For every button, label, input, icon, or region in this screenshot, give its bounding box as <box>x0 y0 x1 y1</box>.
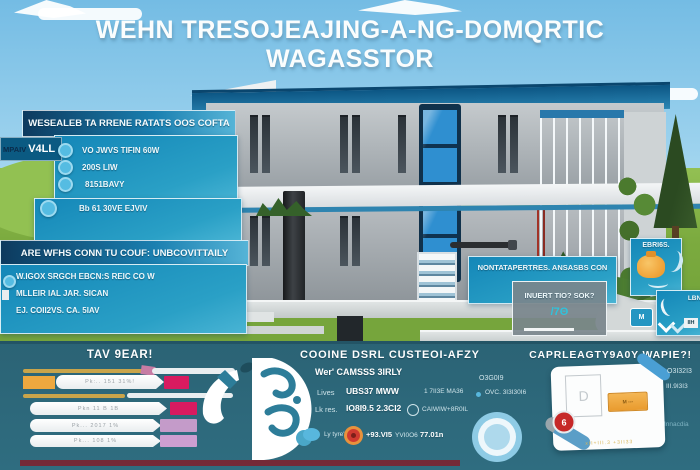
glass-pane <box>423 110 457 182</box>
blue-ellipse-icon[interactable] <box>303 428 320 441</box>
row-extra: 1 7II3E MA36 <box>424 388 463 395</box>
list-marker <box>2 290 9 300</box>
bullet-icon <box>58 143 73 158</box>
metric-sub: OVC. 3I3I30I6 <box>485 389 526 396</box>
stat-label: VO JWVS TIFIN 60W <box>82 146 159 155</box>
window <box>352 115 360 173</box>
row-value: IO8I9.5 2.3CI2 <box>346 403 401 413</box>
bar-value-block <box>170 402 197 415</box>
info-panel-header: ARE WFHS CONN TU COUF: UNBCOVITTAILY <box>0 240 249 266</box>
mini-value-chip: IIH <box>684 318 698 328</box>
window <box>352 216 360 266</box>
stats-side-tab[interactable]: MPAIV V4LL <box>0 137 62 161</box>
window <box>262 115 270 173</box>
bar-value-block <box>160 435 197 447</box>
bar-label: Pk... 2017 1% <box>72 423 119 429</box>
underline <box>524 328 574 331</box>
bar-row[interactable]: Pk... 2017 1% <box>30 419 161 432</box>
info-line: MLLEIR IAL JAR. SICAN <box>16 289 108 298</box>
column2-subtitle: Wer' CAMSSS 3IRLY <box>315 367 402 377</box>
donut-ring-core <box>484 424 510 450</box>
poster-title: WEHN TRESOJEAJING-A-NG-DOMQRTIC WAGASSTO… <box>30 16 670 74</box>
jar-lid-icon <box>646 251 656 257</box>
bar-label: Pk:.. 151 31%! <box>85 379 135 385</box>
stat-label: 8151BAVY <box>85 180 124 189</box>
bullet-icon <box>3 275 16 288</box>
maroon-strip <box>20 460 460 466</box>
stat-item[interactable]: VO JWVS TIFIN 60W <box>58 143 159 158</box>
row-extra: CAIWIW+8R0IL <box>422 406 468 413</box>
infographic-poster: WEHN TRESOJEAJING-A-NG-DOMQRTIC WAGASSTO… <box>0 0 700 470</box>
info-line: EJ. COII2VS. CA. 5IAV <box>16 306 99 315</box>
callout-label: INUERT TIO? SOK? <box>513 291 606 300</box>
gold-line <box>23 394 125 398</box>
metric-label: O3G0I9 <box>479 375 504 382</box>
stat-label: Bb 61 30VE EJVIV <box>79 204 147 213</box>
monogram-icon[interactable]: M <box>630 308 653 327</box>
dark-door <box>337 316 363 342</box>
callout-value: /7Θ <box>513 306 606 318</box>
window <box>340 216 348 266</box>
stats-panel-title: WESEALEB TA RRENE RATATS OOS COFTA <box>28 118 229 129</box>
card-photo-frame: D <box>565 374 602 417</box>
orange-segment <box>23 376 55 389</box>
footer-value: YVI0O6 <box>395 432 418 439</box>
row-label: Lk res. <box>315 405 338 414</box>
info-panel-title: ARE WFHS CONN TU COUF: UNBCOVITTAILY <box>21 248 228 259</box>
column3-title: CAPRLEAGTY9A0Y WAPIE?! <box>528 349 693 361</box>
badge-label: EBRI6S. <box>631 242 681 249</box>
metric-label: O3I32I3 <box>667 368 692 375</box>
stats-panel-header: WESEALEB TA RRENE RATATS OOS COFTA <box>22 110 236 137</box>
metric-sub: III.9I3I3 <box>666 383 688 390</box>
column2-title: COOINE DSRL CUSTEOI-AFZY <box>300 349 470 361</box>
footer-label: Ly tyre' <box>324 431 345 438</box>
row-label: Lives <box>317 388 335 397</box>
footer-value: +93.VI5 <box>366 430 392 439</box>
wave-icon <box>648 279 668 288</box>
pipe-cap <box>508 240 517 250</box>
stat-item[interactable]: Bb 61 30VE EJVIV <box>40 200 147 217</box>
bullet-icon <box>40 200 57 217</box>
row-value: UBS37 MWW <box>346 386 399 396</box>
window <box>398 115 406 173</box>
card-button[interactable]: M --- <box>608 392 649 412</box>
bullet-icon <box>58 160 73 175</box>
column1-title: TAV 9EAR! <box>55 349 185 361</box>
stat-label: 200S LIW <box>82 163 118 172</box>
footer-value: 77.01n <box>420 430 443 439</box>
window <box>250 115 258 173</box>
callout-header: NONTATAPERTRES. ANSASBS CON <box>469 263 616 272</box>
info-line: W.IGOX SRGCH EBCN:S REIC CO W <box>16 272 155 281</box>
id-card[interactable]: D M --- 6 xII+III.3 +3II33 <box>551 363 666 451</box>
tab-light-label: V4LL <box>28 143 55 155</box>
bar-value-block <box>164 376 189 389</box>
bar-value-block <box>160 419 197 432</box>
gold-line <box>23 369 151 373</box>
stat-item[interactable]: 200S LIW <box>58 160 118 175</box>
pipe <box>450 242 514 248</box>
equals-icon <box>407 404 419 416</box>
record-icon-dot <box>351 433 356 438</box>
leaf-shape-icon <box>197 366 241 428</box>
window <box>340 115 348 173</box>
bar-label: Pk... 108 1% <box>74 438 117 444</box>
tab-dark-label: MPAIV <box>3 145 26 154</box>
bar-label: Pkn 11 B 1B <box>78 406 119 412</box>
bullet-icon <box>58 177 73 192</box>
bar-row[interactable]: Pk... 108 1% <box>30 435 161 447</box>
stat-item[interactable]: 8151BAVY <box>58 177 124 192</box>
window <box>498 115 506 173</box>
dot-icon <box>476 392 481 397</box>
bar-row[interactable]: Pk:.. 151 31%! <box>56 375 164 389</box>
jar-icon <box>637 255 665 278</box>
window <box>510 115 518 173</box>
window <box>262 216 270 266</box>
window <box>250 216 258 266</box>
bar-row[interactable]: Pkn 11 B 1B <box>30 402 167 415</box>
metric-note: Innacdia <box>664 421 689 428</box>
